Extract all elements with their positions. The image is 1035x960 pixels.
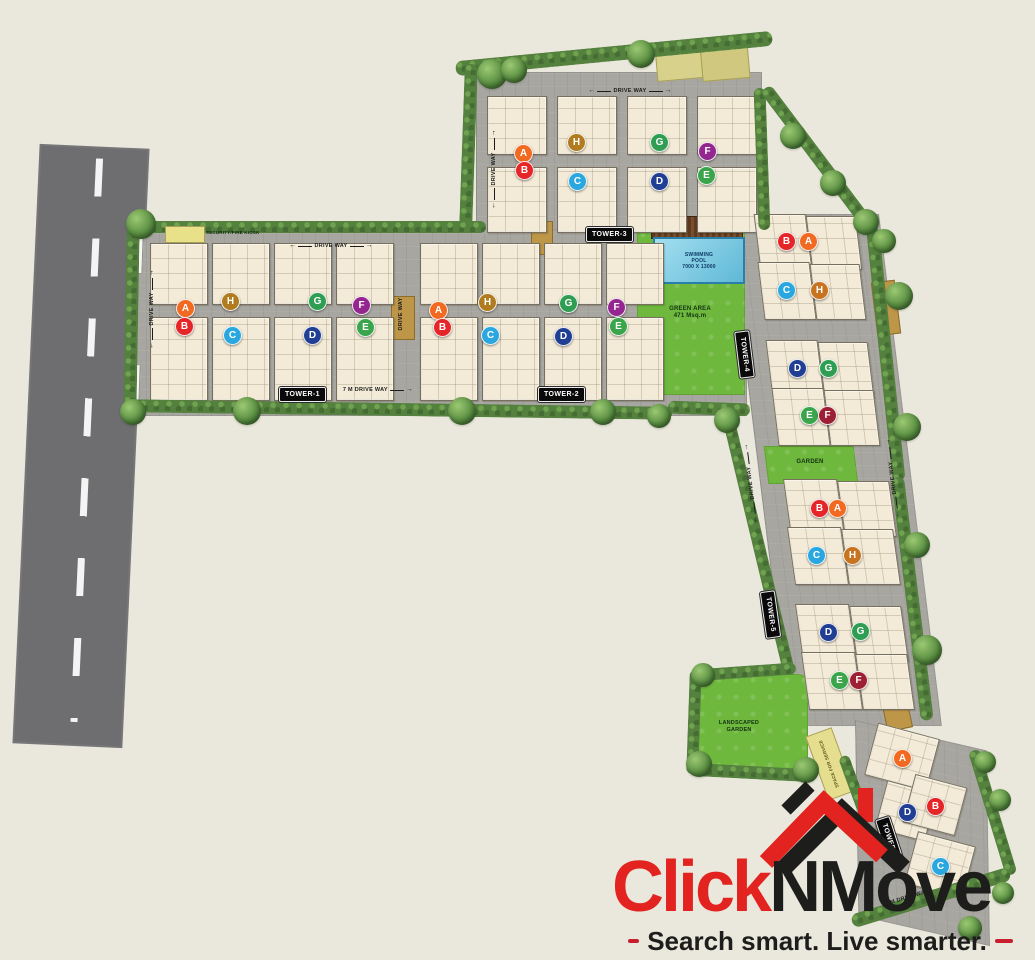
road-center-dashes (71, 158, 104, 722)
unit-badge-e: E (830, 671, 849, 690)
driveway-label-7m: 7 M DRIVE WAY → (328, 387, 428, 393)
unit-badge-d: D (303, 326, 322, 345)
green-area-label: GREEN AREA 471 Msq.m (655, 306, 725, 320)
unit-badge-c: C (481, 326, 500, 345)
unit-badge-d: D (788, 359, 807, 378)
tree-icon (820, 170, 846, 196)
swimming-pool: SWIMMING POOL 7000 X 13000 (653, 237, 745, 284)
unit-badge-b: B (175, 317, 194, 336)
arrow-left-icon: ← (491, 202, 497, 209)
building-block (150, 243, 208, 305)
driveway-label-t3-left: ← DRIVE WAY → (491, 129, 497, 209)
tree-icon (872, 229, 896, 253)
tree-icon (590, 399, 616, 425)
unit-badge-h: H (810, 281, 829, 300)
unit-badge-b: B (433, 318, 452, 337)
tree-icon (992, 882, 1014, 904)
tree-icon (904, 532, 930, 558)
tree-icon (691, 663, 715, 687)
arrow-right-icon: → (366, 243, 373, 249)
unit-badge-f: F (818, 406, 837, 425)
pool-label-3: 7000 X 13000 (682, 264, 716, 270)
tree-icon (912, 635, 942, 665)
unit-badge-a: A (176, 299, 195, 318)
landscaped-garden-label: LANDSCAPED GARDEN (704, 720, 774, 734)
unit-badge-h: H (567, 133, 586, 152)
tree-icon (627, 40, 655, 68)
site-plan-canvas: SPACE FOR SERVICE SWIMMING POOL 7000 X 1… (0, 0, 1035, 960)
arrow-right-icon: → (665, 88, 672, 94)
unit-badge-c: C (223, 326, 242, 345)
unit-badge-g: G (650, 133, 669, 152)
arrow-right-icon: → (743, 443, 750, 451)
tree-icon (448, 397, 476, 425)
tree-icon (647, 404, 671, 428)
arrow-left-icon: ← (894, 510, 901, 518)
unit-badge-f: F (352, 296, 371, 315)
tree-icon (501, 57, 527, 83)
unit-badge-e: E (356, 318, 375, 337)
tree-icon (714, 407, 740, 433)
unit-badge-b: B (515, 161, 534, 180)
arrow-right-icon: → (149, 269, 155, 276)
driveway-label-mid: DRIVE WAY (398, 279, 404, 349)
unit-badge-b: B (810, 499, 829, 518)
unit-badge-g: G (851, 622, 870, 641)
security-kiosk (165, 226, 205, 243)
unit-badge-d: D (650, 172, 669, 191)
garden-label: GARDEN (780, 459, 840, 466)
building-block (212, 317, 270, 401)
tree-icon (686, 751, 712, 777)
tree-icon (885, 282, 913, 310)
unit-badge-e: E (697, 166, 716, 185)
unit-badge-f: F (698, 142, 717, 161)
brand-click: Click (612, 847, 769, 927)
building-block (212, 243, 270, 305)
tower-1-plate: TOWER-1 (279, 387, 326, 402)
building-block (557, 167, 617, 233)
unit-badge-g: G (308, 292, 327, 311)
building-block (606, 243, 664, 305)
tree-icon (989, 789, 1011, 811)
unit-badge-a: A (429, 301, 448, 320)
tree-icon (974, 751, 996, 773)
brand-nmove: NMove (769, 847, 990, 927)
unit-badge-c: C (568, 172, 587, 191)
arrow-left-icon: ← (588, 88, 595, 94)
unit-badge-e: E (800, 406, 819, 425)
tagline-dash-left (628, 939, 639, 943)
unit-badge-a: A (893, 749, 912, 768)
building-block (420, 243, 478, 305)
arrow-left-icon: ← (289, 243, 296, 249)
tower-2-plate: TOWER-2 (538, 387, 585, 402)
brand-wordmark: ClickNMove (612, 850, 990, 924)
building-block (557, 96, 617, 155)
unit-badge-g: G (559, 294, 578, 313)
arrow-right-icon: → (406, 387, 413, 393)
tree-icon (126, 209, 156, 239)
tree-icon (233, 397, 261, 425)
unit-badge-f: F (607, 298, 626, 317)
unit-badge-h: H (843, 546, 862, 565)
arrow-left-icon: ← (752, 515, 759, 523)
unit-badge-d: D (554, 327, 573, 346)
driveway-label-top: ← DRIVE WAY → (585, 88, 675, 94)
arrow-right-icon: → (491, 129, 497, 136)
unit-badge-b: B (777, 232, 796, 251)
unit-badge-b: B (926, 797, 945, 816)
tree-icon (893, 413, 921, 441)
unit-badge-g: G (819, 359, 838, 378)
unit-badge-c: C (807, 546, 826, 565)
driveway-label-t12-top: ← DRIVE WAY → (276, 243, 386, 249)
unit-badge-c: C (777, 281, 796, 300)
tree-icon (780, 123, 806, 149)
brand-tagline: Search smart. Live smarter. (628, 926, 1013, 956)
driveway-label-t12-left: ← DRIVE WAY → (149, 269, 155, 349)
unit-badge-f: F (849, 671, 868, 690)
unit-badge-e: E (609, 317, 628, 336)
arrow-left-icon: ← (149, 342, 155, 349)
tagline-dash-right (995, 939, 1013, 943)
unit-badge-h: H (478, 293, 497, 312)
unit-badge-h: H (221, 292, 240, 311)
unit-badge-d: D (819, 623, 838, 642)
unit-badge-a: A (828, 499, 847, 518)
tower-3-plate: TOWER-3 (586, 227, 633, 242)
tree-icon (120, 399, 146, 425)
security-kiosk-label: SECURITY/FIRE KIOSK (206, 229, 284, 236)
unit-badge-a: A (799, 232, 818, 251)
arrow-right-icon: → (885, 438, 892, 446)
